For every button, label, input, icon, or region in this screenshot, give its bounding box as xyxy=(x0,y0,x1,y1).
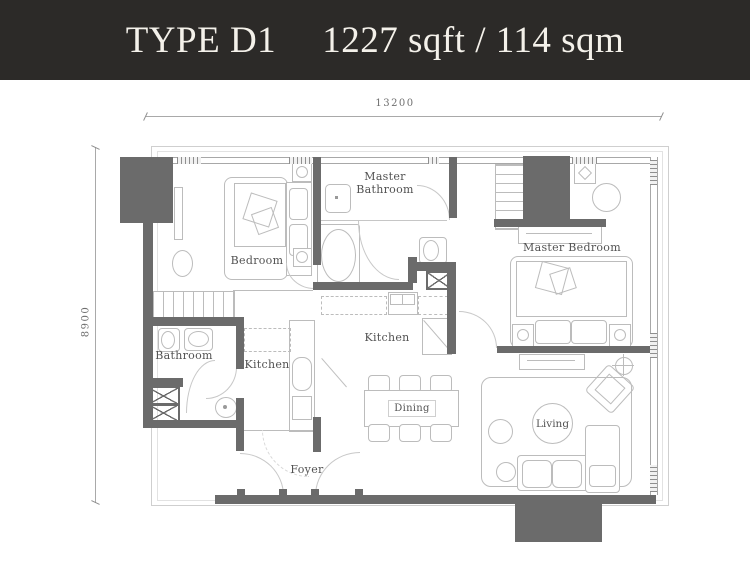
wall-segment xyxy=(408,262,448,271)
sink-drain-dot xyxy=(335,196,338,199)
wall-segment xyxy=(449,157,457,218)
ac-fan-icon xyxy=(296,251,308,263)
window-hatch xyxy=(177,157,201,164)
window-hatch xyxy=(650,160,657,185)
door-jamb xyxy=(311,489,319,495)
door-jamb xyxy=(237,489,245,495)
bedroom-pillow xyxy=(289,188,308,220)
bedroom-stool xyxy=(172,250,193,277)
wall-segment xyxy=(494,219,606,227)
dining-chair xyxy=(368,424,390,442)
floor-plan-page: TYPE D1 1227 sqft / 114 sqm 13200 8900 xyxy=(0,0,750,572)
kitchen-upper-cabinet xyxy=(321,296,387,315)
tv-console xyxy=(519,354,585,370)
master-pillow xyxy=(571,320,607,344)
master-pillow xyxy=(535,320,571,344)
structural-column xyxy=(120,157,173,223)
sofa-cushion xyxy=(552,460,582,488)
dresser-line xyxy=(526,233,592,234)
bedroom-desk xyxy=(174,187,183,240)
sink-basin xyxy=(402,294,415,305)
service-shaft-box xyxy=(147,403,180,423)
dimension-depth-line xyxy=(95,147,96,503)
room-label-master-bedroom: Master Bedroom xyxy=(512,241,632,254)
bedroom-wardrobe xyxy=(152,291,235,318)
wall-segment xyxy=(143,317,244,326)
dimension-tick xyxy=(659,112,664,121)
dimension-width-label: 13200 xyxy=(355,98,435,109)
window-hatch xyxy=(289,157,312,164)
room-label-master-bathroom: Master Bathroom xyxy=(348,170,422,196)
unit-type-label: TYPE D1 xyxy=(126,19,276,62)
window-hatch xyxy=(650,333,657,358)
room-label-kitchen-dry: Kitchen xyxy=(347,331,427,344)
kitchen-hob xyxy=(292,396,312,420)
cabinet-back-line xyxy=(233,290,313,291)
room-label-bathroom: Bathroom xyxy=(144,349,224,362)
window-hatch xyxy=(572,157,597,164)
master-bath-tub-basin xyxy=(321,229,356,282)
kitchen-upper-cabinet xyxy=(244,328,291,352)
shower-drain-dot xyxy=(223,405,227,409)
wall-segment xyxy=(215,495,656,504)
title-bar: TYPE D1 1227 sqft / 114 sqm xyxy=(0,0,750,80)
door-jamb xyxy=(279,489,287,495)
wall-segment xyxy=(313,282,413,290)
chaise-cushion xyxy=(589,465,616,487)
sink-basin xyxy=(188,331,209,347)
structural-column xyxy=(515,504,602,542)
fan-cross-line xyxy=(623,354,624,376)
room-label-kitchen-wet: Kitchen xyxy=(227,358,307,371)
living-area-circle: Living xyxy=(532,403,573,444)
kitchen-upper-cabinet xyxy=(418,296,448,315)
living-label: Living xyxy=(536,418,569,430)
dining-chair xyxy=(430,424,452,442)
wall-segment xyxy=(313,417,321,452)
room-label-foyer: Foyer xyxy=(267,463,347,476)
window-hatch xyxy=(428,157,439,164)
window-wall-right xyxy=(650,157,658,495)
dining-chair xyxy=(399,424,421,442)
window-hatch xyxy=(650,465,657,492)
ac-fan-icon xyxy=(296,166,308,178)
dimension-depth-label: 8900 xyxy=(81,302,92,342)
wall-segment xyxy=(236,398,244,451)
lamp-icon xyxy=(614,329,626,341)
side-table xyxy=(488,419,513,444)
sofa-cushion xyxy=(522,460,552,488)
room-label-dining: Dining xyxy=(388,400,436,417)
lamp-icon xyxy=(517,329,529,341)
dining-label-text: Dining xyxy=(394,403,430,414)
dimension-width-line xyxy=(146,116,662,117)
wall-segment xyxy=(497,346,656,353)
wall-segment xyxy=(313,157,321,265)
mirror xyxy=(592,183,621,212)
toilet-bowl xyxy=(161,331,175,349)
tv-line xyxy=(527,360,575,361)
structural-column xyxy=(523,156,570,223)
side-table xyxy=(496,462,516,482)
toilet-bowl xyxy=(423,240,439,261)
door-jamb xyxy=(355,489,363,495)
service-shaft-box xyxy=(426,271,452,290)
room-label-bedroom: Bedroom xyxy=(217,254,297,267)
unit-area-label: 1227 sqft / 114 sqm xyxy=(322,19,624,62)
